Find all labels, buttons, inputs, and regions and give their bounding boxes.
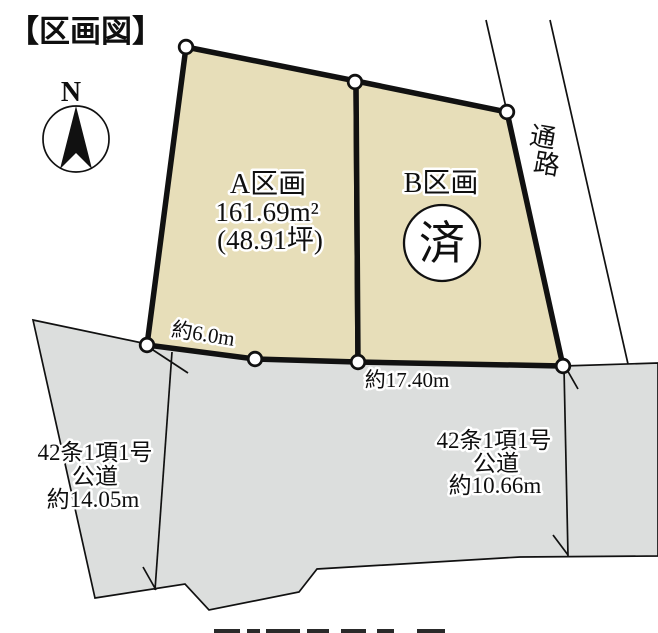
- parcel-a-area-sqm: 161.69m²: [215, 197, 318, 227]
- left-road-line3: 約14.05m: [47, 487, 140, 512]
- bottom-road-line1: 42条1項1号: [437, 428, 552, 453]
- vertex-marker: [351, 355, 365, 369]
- compass-north-label: N: [61, 77, 81, 108]
- bottom-road-line3: 約10.66m: [449, 473, 542, 498]
- measure-south-total: 約17.40m: [365, 368, 450, 392]
- passage-left-edge-line: [486, 20, 507, 112]
- parcel-b-labels: B区画 済: [404, 168, 480, 281]
- vertex-marker: [248, 352, 262, 366]
- parcel-a-area-tsubo: (48.91坪): [217, 225, 323, 255]
- passage-right-edge-line: [550, 20, 628, 364]
- vertex-marker: [140, 338, 154, 352]
- vertex-marker: [500, 105, 514, 119]
- left-road-line2: 公道: [72, 464, 118, 489]
- sold-stamp-text: 済: [419, 218, 465, 269]
- subdivision-map: 【区画図】 N A区画 161.69m² (48.91坪) B区画 済 通 路 …: [0, 0, 658, 633]
- parcel-a-name: A区画: [230, 169, 306, 200]
- vertex-marker: [348, 75, 362, 89]
- parcel-b-name: B区画: [404, 168, 479, 199]
- passage-label: 通 路: [527, 121, 562, 181]
- passage-char-2: 路: [531, 148, 562, 181]
- compass-needle-icon: [60, 106, 92, 169]
- map-canvas: 【区画図】 N A区画 161.69m² (48.91坪) B区画 済 通 路 …: [0, 0, 658, 633]
- compass: N: [43, 77, 109, 172]
- vertex-marker: [556, 359, 570, 373]
- vertex-marker: [179, 40, 193, 54]
- left-road-line1: 42条1項1号: [38, 440, 153, 465]
- page-title: 【区画図】: [8, 14, 163, 49]
- clipped-caption-glyph-tops: [214, 629, 445, 633]
